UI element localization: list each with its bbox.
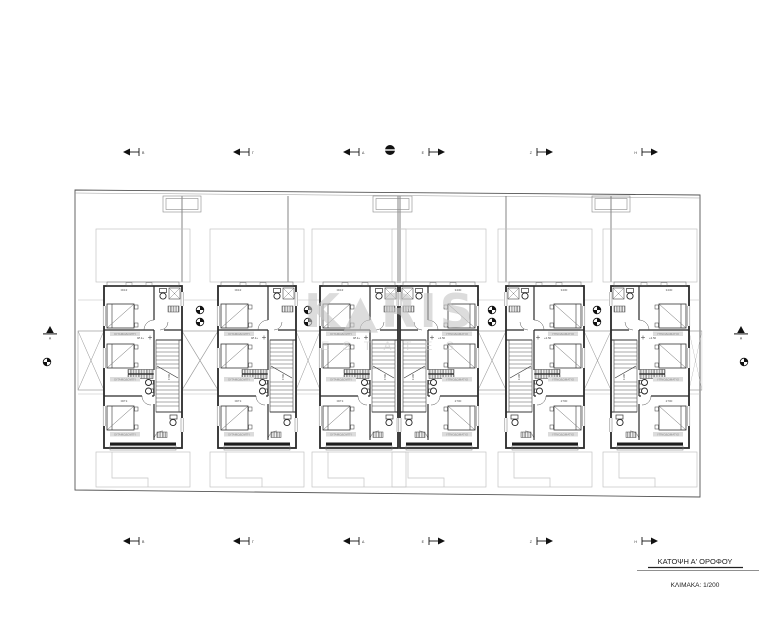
architectural-drawing: ΥΠΝΟΔΩΜΑΤΙΟ ΥΠΝΟΔΩΜΑΤΙΟ ΥΠΝΟΔΩΜΑΤΙΟ 3430… [0, 0, 768, 628]
unit-1-floorplan [102, 282, 184, 450]
plot-division-lines [182, 196, 611, 283]
unit-2-floorplan [216, 282, 298, 450]
svg-text:E S T A T E S: E S T A T E S [321, 339, 459, 353]
section-marker-label: Α [49, 337, 52, 341]
svg-text:Η: Η [634, 151, 637, 155]
roof-outline-lower [96, 452, 697, 487]
benchmark-icon [384, 145, 396, 155]
title-block: ΚΑΤΟΨΗ Α' ΟΡΟΦΟΥ ΚΛΙΜΑΚΑ: 1/200 [637, 557, 759, 589]
svg-text:Γ: Γ [252, 151, 254, 155]
svg-text:Ζ: Ζ [530, 151, 533, 155]
svg-text:Ε: Ε [422, 151, 425, 155]
watermark: K▲RIS E S T A T E S [304, 284, 476, 353]
drawing-scale: ΚΛΙΜΑΚΑ: 1/200 [671, 582, 720, 589]
unit-6-floorplan [609, 282, 691, 450]
svg-text:Δ: Δ [362, 151, 365, 155]
section-arrow-icon [123, 537, 658, 545]
roof-hatch-box [163, 196, 630, 212]
svg-text:Η: Η [634, 540, 637, 544]
floor-plan-canvas: ΥΠΝΟΔΩΜΑΤΙΟ ΥΠΝΟΔΩΜΑΤΙΟ ΥΠΝΟΔΩΜΑΤΙΟ 3430… [0, 0, 768, 628]
svg-text:Ζ: Ζ [530, 540, 533, 544]
drawing-title: ΚΑΤΟΨΗ Α' ΟΡΟΦΟΥ [658, 557, 733, 566]
roof-outline-upper [96, 229, 697, 282]
unit-5-floorplan [504, 282, 586, 450]
section-marker-label: Α [740, 337, 743, 341]
section-marker-label: Β Γ Δ Ε Ζ Η [142, 540, 637, 544]
svg-text:K▲RIS: K▲RIS [304, 284, 476, 338]
svg-text:Β: Β [142, 540, 145, 544]
svg-text:Δ: Δ [362, 540, 365, 544]
svg-text:Ε: Ε [422, 540, 425, 544]
svg-text:Γ: Γ [252, 540, 254, 544]
svg-text:Β: Β [142, 151, 145, 155]
